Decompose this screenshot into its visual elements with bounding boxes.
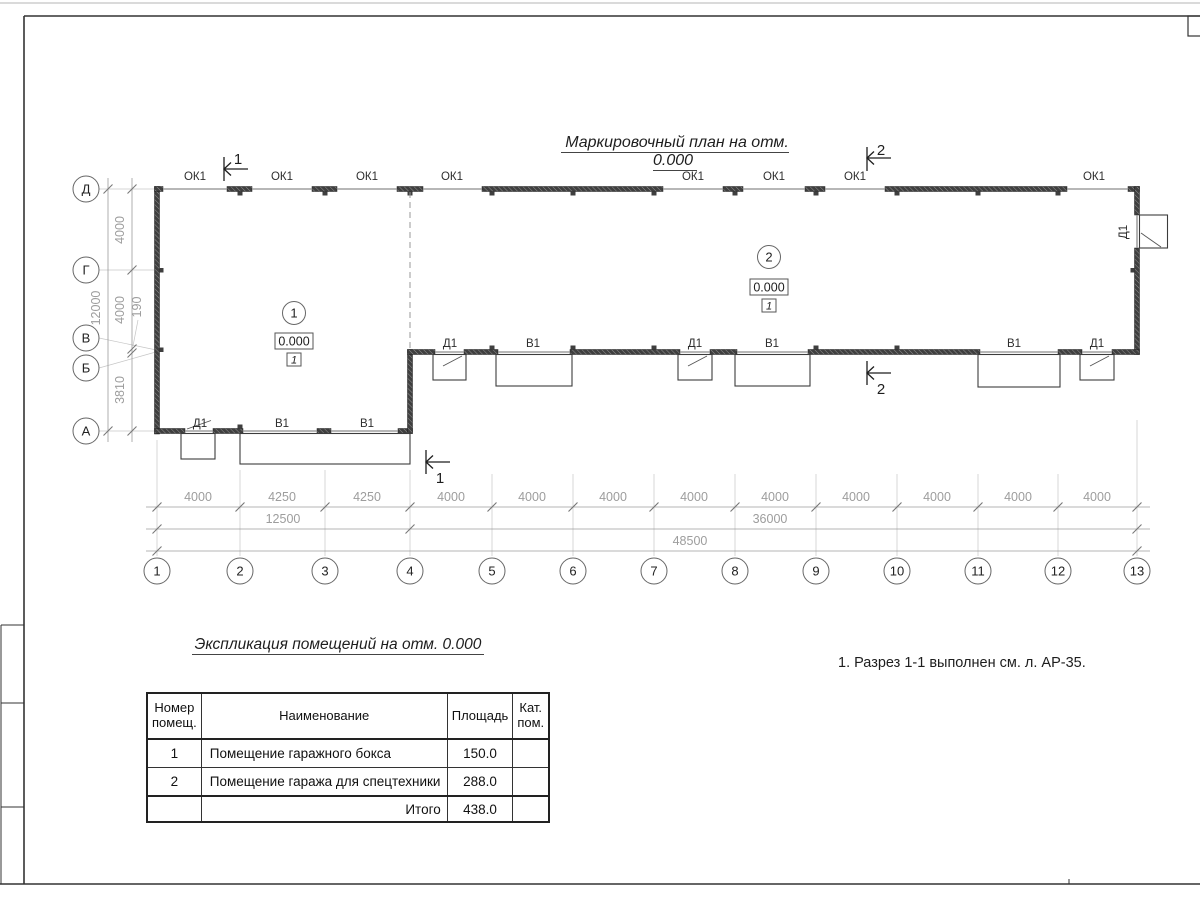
room-name-cell: Помещение гаражного бокса bbox=[201, 739, 447, 768]
room-elevation: 0.000 bbox=[278, 335, 309, 349]
table-total-row: Итого 438.0 bbox=[147, 796, 549, 822]
section-mark-1-bottom: 1 bbox=[426, 450, 450, 487]
axis-number: 9 bbox=[812, 564, 819, 579]
total-empty-cell bbox=[147, 796, 201, 822]
dim-bay: 4000 bbox=[437, 490, 465, 504]
drawing-sheet: ОК1 ОК1 ОК1 ОК1 ОК1 ОК1 ОК1 ОК1 Д1 В1 В1… bbox=[0, 0, 1200, 900]
gate-label: В1 bbox=[526, 338, 540, 350]
dim-bay: 4000 bbox=[923, 490, 951, 504]
axis-number: 2 bbox=[236, 564, 243, 579]
room-area-cell: 288.0 bbox=[447, 768, 513, 797]
section-number: 1 bbox=[436, 470, 444, 487]
dim-left-total: 12000 bbox=[89, 291, 103, 326]
axis-number: 13 bbox=[1130, 564, 1144, 579]
col-header-name: Наименование bbox=[201, 693, 447, 739]
section-mark-1-top: 1 bbox=[224, 151, 248, 181]
top-wall-pilasters bbox=[238, 192, 1061, 196]
dim-bay: 4000 bbox=[761, 490, 789, 504]
gate-label: В1 bbox=[1007, 338, 1021, 350]
room-marker-2: 2 0.000 1 bbox=[750, 246, 788, 313]
plan-title: Маркировочный план на отм. 0.000 bbox=[540, 134, 810, 170]
dim-bay: 4000 bbox=[518, 490, 546, 504]
axis-number: 11 bbox=[971, 564, 985, 579]
door-label: Д1 bbox=[193, 418, 207, 430]
section-number: 2 bbox=[877, 381, 885, 398]
table-row: 1 Помещение гаражного бокса 150.0 bbox=[147, 739, 549, 768]
room-number: 2 bbox=[765, 250, 772, 265]
axis-number: 10 bbox=[890, 564, 904, 579]
window-label: ОК1 bbox=[763, 171, 785, 183]
table-row: 2 Помещение гаража для спецтехники 288.0 bbox=[147, 768, 549, 797]
frame-left-stamp-column bbox=[1, 625, 24, 884]
dim-left: 4000 bbox=[113, 296, 127, 324]
axis-number: 5 bbox=[488, 564, 495, 579]
window-label: ОК1 bbox=[844, 171, 866, 183]
left-dimensions: 4000 4000 190 3810 12000 bbox=[89, 178, 144, 442]
dim-total: 48500 bbox=[673, 534, 708, 548]
room-num-cell: 1 bbox=[147, 739, 201, 768]
dim-group-right: 36000 bbox=[753, 512, 788, 526]
col-header-category: Кат. пом. bbox=[513, 693, 549, 739]
room-num-cell: 2 bbox=[147, 768, 201, 797]
door-label: Д1 bbox=[1118, 225, 1130, 239]
section-number: 1 bbox=[234, 151, 242, 168]
dim-bay: 4000 bbox=[599, 490, 627, 504]
dim-bay: 4250 bbox=[268, 490, 296, 504]
axis-letter: А bbox=[82, 424, 91, 439]
extension-lines bbox=[157, 420, 1137, 556]
explication-table: Номер помещ. Наименование Площадь Кат. п… bbox=[146, 692, 550, 823]
table-header-row: Номер помещ. Наименование Площадь Кат. п… bbox=[147, 693, 549, 739]
room-marker-1: 1 0.000 1 bbox=[275, 302, 313, 367]
total-label-cell: Итого bbox=[201, 796, 447, 822]
explication-title: Экспликация помещений на отм. 0.000 bbox=[188, 636, 488, 654]
room-name-cell: Помещение гаража для спецтехники bbox=[201, 768, 447, 797]
dim-bay: 4000 bbox=[842, 490, 870, 504]
bottom-axes: 1 2 3 4 5 6 7 8 9 10 11 12 13 bbox=[144, 558, 1150, 584]
axis-number: 1 bbox=[153, 564, 160, 579]
note-text: 1. Разрез 1-1 выполнен см. л. АР-35. bbox=[838, 655, 1086, 671]
door-leaves bbox=[443, 233, 1161, 366]
dim-bay: 4000 bbox=[1004, 490, 1032, 504]
window-label: ОК1 bbox=[441, 171, 463, 183]
gate-label: В1 bbox=[360, 418, 374, 430]
axis-number: 12 bbox=[1051, 564, 1065, 579]
total-cat-cell bbox=[513, 796, 549, 822]
section-number: 2 bbox=[877, 142, 885, 159]
axis-number: 6 bbox=[569, 564, 576, 579]
room-number: 1 bbox=[290, 306, 297, 321]
col-header-area: Площадь bbox=[447, 693, 513, 739]
axis-number: 8 bbox=[731, 564, 738, 579]
col-header-number: Номер помещ. bbox=[147, 693, 201, 739]
opening-labels: ОК1 ОК1 ОК1 ОК1 ОК1 ОК1 ОК1 ОК1 Д1 В1 В1… bbox=[184, 171, 1130, 430]
floor-type-mark: 1 bbox=[766, 301, 772, 313]
room-area-cell: 150.0 bbox=[447, 739, 513, 768]
window-label: ОК1 bbox=[682, 171, 704, 183]
axis-letter: Б bbox=[82, 361, 91, 376]
axis-number: 4 bbox=[406, 564, 413, 579]
dim-group-left: 12500 bbox=[266, 512, 301, 526]
window-label: ОК1 bbox=[1083, 171, 1105, 183]
window-label: ОК1 bbox=[271, 171, 293, 183]
room-cat-cell bbox=[513, 739, 549, 768]
room-cat-cell bbox=[513, 768, 549, 797]
total-value-cell: 438.0 bbox=[447, 796, 513, 822]
axis-letter: В bbox=[82, 331, 91, 346]
door-label: Д1 bbox=[688, 338, 702, 350]
dim-left: 4000 bbox=[113, 216, 127, 244]
axis-letter: Г bbox=[82, 263, 89, 278]
dim-bay: 4000 bbox=[680, 490, 708, 504]
frame-corner-box bbox=[1188, 16, 1200, 36]
dim-left: 3810 bbox=[113, 376, 127, 404]
door-label: Д1 bbox=[443, 338, 457, 350]
door-label: Д1 bbox=[1090, 338, 1104, 350]
section-mark-2-bottom: 2 bbox=[867, 361, 891, 398]
gate-label: В1 bbox=[765, 338, 779, 350]
dim-bay: 4000 bbox=[1083, 490, 1111, 504]
window-label: ОК1 bbox=[356, 171, 378, 183]
window-label: ОК1 bbox=[184, 171, 206, 183]
section-mark-2-top: 2 bbox=[867, 142, 891, 171]
axis-number: 3 bbox=[321, 564, 328, 579]
axis-number: 7 bbox=[650, 564, 657, 579]
gate-label: В1 bbox=[275, 418, 289, 430]
bottom-dimensions: 4000 4250 4250 4000 4000 4000 4000 4000 … bbox=[146, 420, 1150, 556]
dim-left: 190 bbox=[130, 297, 144, 318]
dim-bay: 4250 bbox=[353, 490, 381, 504]
room-elevation: 0.000 bbox=[753, 281, 784, 295]
dim-bay: 4000 bbox=[184, 490, 212, 504]
floor-type-mark: 1 bbox=[291, 355, 297, 367]
axis-letter: Д bbox=[82, 182, 91, 197]
